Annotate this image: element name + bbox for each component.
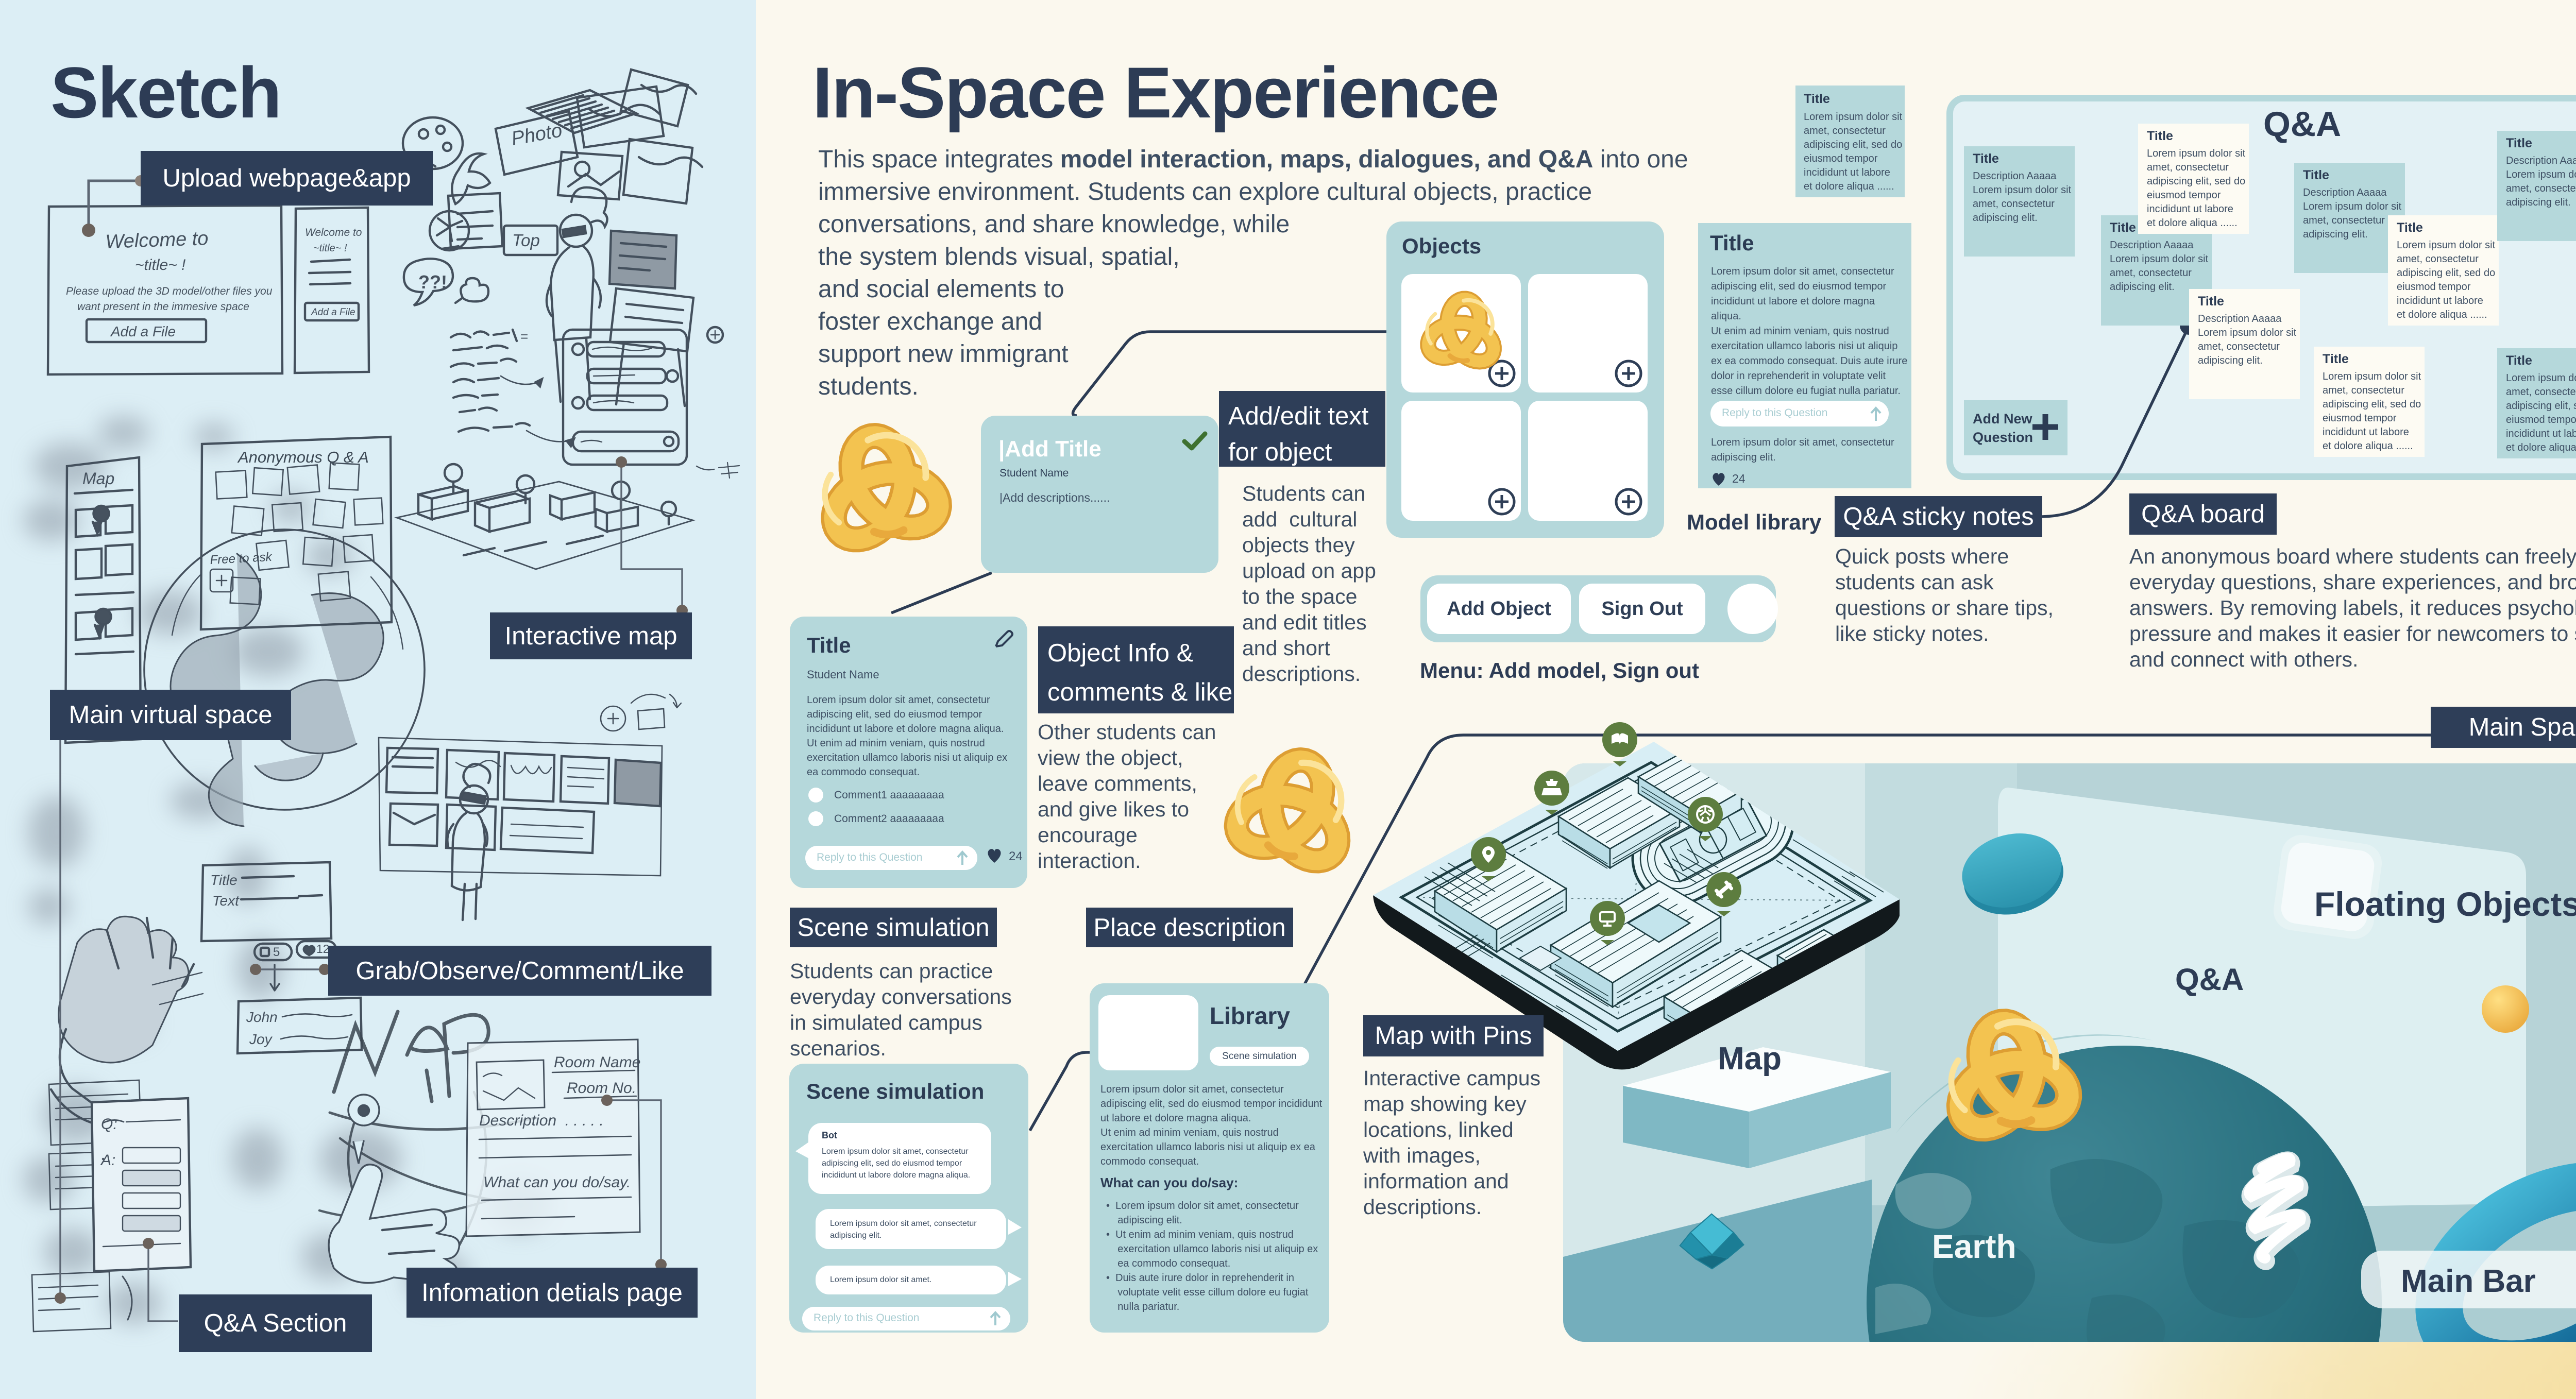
svg-text:Floating Objects: Floating Objects <box>2314 885 2576 923</box>
svg-text:Main Bar: Main Bar <box>2401 1264 2536 1299</box>
svg-text:Earth: Earth <box>1932 1228 2016 1265</box>
svg-text:Q&A: Q&A <box>2175 962 2244 997</box>
